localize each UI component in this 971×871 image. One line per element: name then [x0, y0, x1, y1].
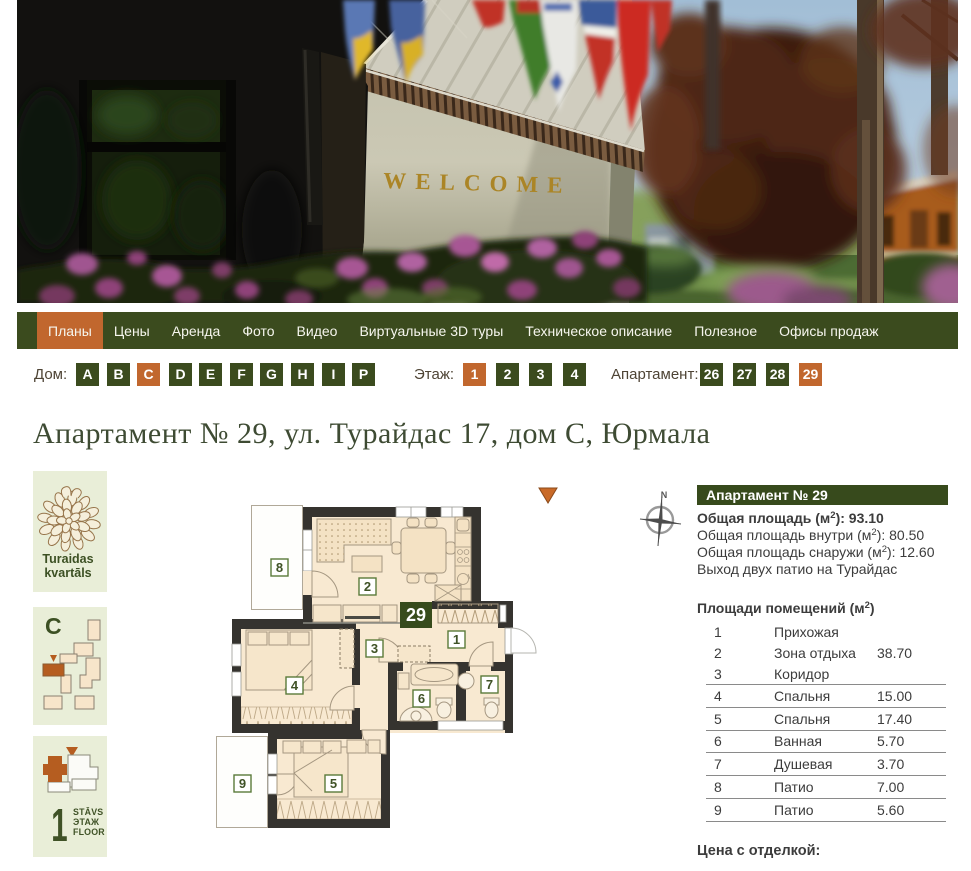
svg-text:2: 2 [364, 579, 371, 594]
svg-text:8: 8 [276, 560, 283, 575]
svg-text:kvartāls: kvartāls [44, 566, 91, 580]
svg-text:WELCOME: WELCOME [383, 168, 572, 198]
svg-text:1: 1 [453, 632, 460, 647]
svg-text:1: 1 [51, 801, 67, 852]
svg-text:4: 4 [291, 678, 299, 693]
svg-text:29: 29 [406, 605, 426, 625]
svg-text:9: 9 [239, 776, 246, 791]
svg-text:7: 7 [486, 677, 493, 692]
svg-text:C: C [45, 613, 62, 639]
svg-text:ЭТАЖ: ЭТАЖ [73, 817, 99, 827]
svg-text:5: 5 [330, 776, 337, 791]
svg-text:Turaidas: Turaidas [42, 552, 93, 566]
svg-text:6: 6 [418, 691, 425, 706]
svg-text:3: 3 [371, 641, 378, 656]
svg-text:STĀVS: STĀVS [73, 807, 103, 817]
svg-text:FLOOR: FLOOR [73, 827, 105, 837]
svg-text:N: N [661, 490, 668, 500]
